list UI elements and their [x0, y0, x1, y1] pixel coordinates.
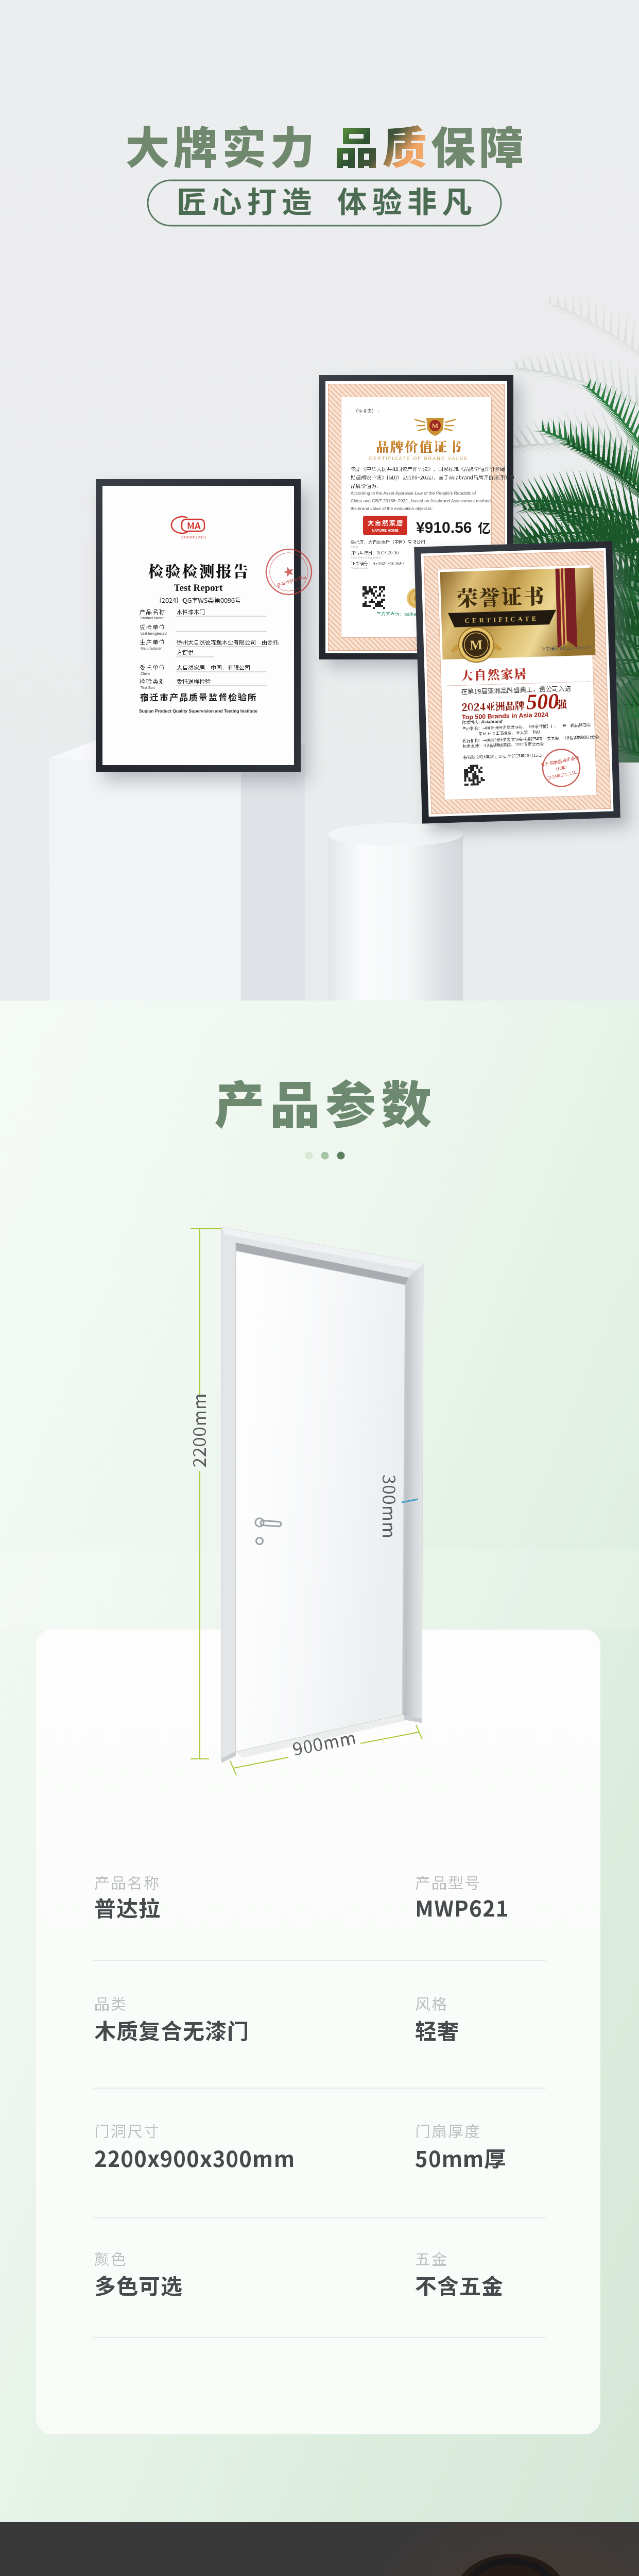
svg-text:NATURE HOME: NATURE HOME [372, 529, 399, 533]
svg-text:M: M [470, 637, 482, 653]
svg-text:500: 500 [526, 690, 559, 715]
svg-text:Manufacturer: Manufacturer [141, 647, 162, 651]
svg-text:Unit beingtested: Unit beingtested [141, 632, 167, 636]
svg-text:Base Date of Evaluation: Base Date of Evaluation [351, 556, 381, 560]
svg-text:Suqian Product Quality Supervi: Suqian Product Quality Supervision and T… [139, 708, 257, 714]
svg-text:Product Name: Product Name [141, 617, 164, 620]
svg-text:211020112311: 211020112311 [181, 535, 206, 539]
svg-text:Client: Client [141, 672, 150, 676]
svg-text:Asiabrand: Asiabrand [480, 719, 503, 724]
svg-text:China and GB/T 29188~2022 , ba: China and GB/T 29188~2022 , based on Asi… [351, 498, 492, 503]
svg-text:According to the Asset Apprais: According to the Asset Appraisal Law of … [351, 490, 476, 496]
svg-text:¥910.56: ¥910.56 [416, 519, 472, 536]
svg-text:Test Report: Test Report [174, 583, 223, 594]
svg-text:Top 500 Brands in Asia 2024: Top 500 Brands in Asia 2024 [462, 711, 549, 721]
svg-text:M: M [432, 422, 438, 430]
svg-text:the brand value of the evaluat: the brand value of the evaluation object… [351, 506, 433, 511]
svg-text:CERTIFICATE OF BRAND VALUE: CERTIFICATE OF BRAND VALUE [369, 456, 468, 461]
svg-text:Certificate No: Certificate No [351, 567, 368, 570]
svg-text:Test Sort: Test Sort [141, 686, 155, 690]
svg-text:Client: Client [351, 546, 358, 549]
